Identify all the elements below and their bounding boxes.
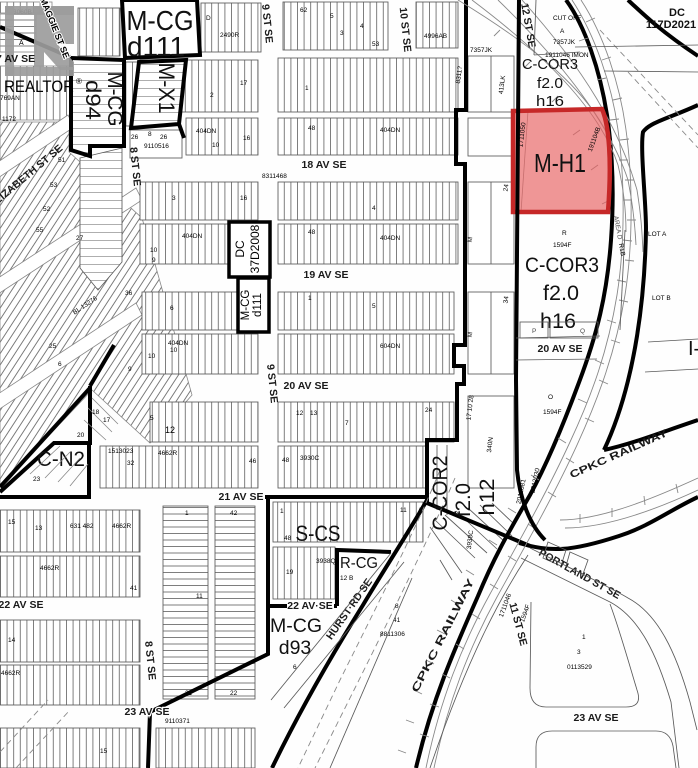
svg-text:d111: d111 bbox=[127, 31, 185, 62]
svg-text:42: 42 bbox=[230, 510, 238, 517]
svg-text:22 AV·SE: 22 AV·SE bbox=[287, 600, 333, 612]
svg-text:19 AV SE: 19 AV SE bbox=[304, 269, 349, 281]
svg-text:M: M bbox=[467, 332, 475, 338]
svg-text:4: 4 bbox=[360, 23, 364, 30]
svg-text:21: 21 bbox=[185, 690, 193, 697]
svg-text:6: 6 bbox=[58, 361, 62, 368]
svg-text:404DN: 404DN bbox=[380, 235, 401, 242]
svg-text:51: 51 bbox=[58, 157, 66, 164]
svg-text:M-X1: M-X1 bbox=[154, 63, 179, 114]
svg-text:2490R: 2490R bbox=[220, 32, 239, 39]
svg-text:20: 20 bbox=[77, 432, 85, 439]
svg-text:h12: h12 bbox=[476, 479, 499, 516]
svg-text:1: 1 bbox=[582, 634, 586, 641]
svg-text:1594F: 1594F bbox=[553, 242, 571, 249]
svg-text:26: 26 bbox=[160, 134, 168, 141]
svg-text:DC: DC bbox=[669, 7, 685, 19]
svg-text:13: 13 bbox=[310, 410, 318, 417]
svg-text:C-COR3: C-COR3 bbox=[525, 254, 599, 277]
svg-text:15: 15 bbox=[100, 748, 108, 755]
svg-text:1172: 1172 bbox=[2, 116, 16, 123]
svg-text:CUT OFF: CUT OFF bbox=[553, 15, 581, 22]
svg-text:Q: Q bbox=[580, 328, 585, 335]
svg-text:11: 11 bbox=[196, 593, 203, 600]
svg-text:18 AV SE: 18 AV SE bbox=[302, 159, 347, 171]
svg-text:I-: I- bbox=[688, 338, 698, 360]
svg-text:404DN: 404DN bbox=[196, 128, 217, 135]
svg-text:12: 12 bbox=[296, 410, 304, 417]
svg-text:O: O bbox=[548, 394, 553, 401]
svg-text:2: 2 bbox=[210, 92, 214, 99]
svg-text:D: D bbox=[206, 15, 211, 22]
svg-text:1594F: 1594F bbox=[543, 409, 561, 416]
svg-text:5: 5 bbox=[372, 303, 376, 310]
svg-text:1: 1 bbox=[308, 295, 312, 302]
svg-text:f2.0: f2.0 bbox=[452, 483, 475, 517]
svg-text:0113529: 0113529 bbox=[567, 664, 592, 671]
svg-text:1: 1 bbox=[280, 508, 284, 515]
svg-text:32: 32 bbox=[127, 460, 135, 467]
svg-text:24: 24 bbox=[425, 407, 433, 414]
svg-text:8: 8 bbox=[148, 131, 152, 138]
svg-text:3938Q: 3938Q bbox=[316, 558, 336, 565]
svg-text:A: A bbox=[19, 40, 24, 47]
svg-text:17: 17 bbox=[240, 80, 248, 87]
svg-text:17: 17 bbox=[103, 417, 111, 424]
svg-text:48: 48 bbox=[308, 229, 316, 236]
svg-text:19: 19 bbox=[286, 569, 294, 576]
svg-text:12 B: 12 B bbox=[340, 575, 353, 582]
svg-text:LOT A: LOT A bbox=[648, 231, 667, 238]
svg-text:M: M bbox=[467, 237, 475, 243]
svg-text:4662R: 4662R bbox=[40, 565, 59, 572]
svg-text:7 AV SE: 7 AV SE bbox=[0, 53, 35, 65]
svg-text:8811306: 8811306 bbox=[380, 631, 405, 638]
svg-text:4662R: 4662R bbox=[158, 450, 177, 457]
svg-text:4996AB: 4996AB bbox=[424, 33, 447, 40]
svg-text:16: 16 bbox=[243, 135, 251, 142]
svg-text:18: 18 bbox=[92, 409, 100, 416]
svg-text:d111: d111 bbox=[252, 293, 264, 317]
svg-text:14: 14 bbox=[8, 637, 16, 644]
svg-text:23 AV SE: 23 AV SE bbox=[125, 706, 170, 718]
svg-text:52: 52 bbox=[43, 206, 51, 213]
svg-text:53: 53 bbox=[50, 182, 58, 189]
svg-text:A: A bbox=[560, 28, 565, 35]
svg-text:4: 4 bbox=[372, 205, 376, 212]
svg-text:48: 48 bbox=[308, 125, 316, 132]
svg-text:9110516: 9110516 bbox=[144, 143, 169, 150]
svg-text:37D2008: 37D2008 bbox=[248, 224, 262, 273]
svg-text:R: R bbox=[562, 230, 567, 237]
svg-text:LOT B: LOT B bbox=[652, 295, 671, 302]
svg-text:24: 24 bbox=[503, 183, 511, 191]
svg-text:3: 3 bbox=[577, 649, 581, 656]
svg-text:16: 16 bbox=[240, 195, 248, 202]
svg-text:R-CG: R-CG bbox=[340, 555, 378, 572]
svg-text:f2.0: f2.0 bbox=[537, 75, 563, 92]
svg-text:25: 25 bbox=[49, 343, 57, 350]
svg-text:®: ® bbox=[76, 77, 82, 86]
svg-text:15: 15 bbox=[8, 519, 16, 526]
svg-text:1: 1 bbox=[305, 85, 309, 92]
svg-text:M-H1: M-H1 bbox=[534, 148, 586, 178]
svg-text:3: 3 bbox=[340, 30, 344, 37]
svg-text:604DN: 604DN bbox=[380, 343, 401, 350]
svg-text:41: 41 bbox=[393, 617, 401, 624]
svg-text:26: 26 bbox=[131, 134, 139, 141]
svg-text:404DN: 404DN bbox=[168, 340, 189, 347]
svg-text:M-CG: M-CG bbox=[240, 290, 252, 321]
svg-text:5: 5 bbox=[150, 415, 154, 422]
svg-text:d94: d94 bbox=[81, 80, 104, 120]
svg-text:48: 48 bbox=[282, 457, 290, 464]
svg-text:23: 23 bbox=[33, 476, 41, 483]
svg-text:9: 9 bbox=[152, 257, 156, 264]
svg-text:36: 36 bbox=[125, 290, 133, 297]
svg-text:20 AV SE: 20 AV SE bbox=[284, 380, 329, 392]
svg-text:404DN: 404DN bbox=[380, 127, 401, 134]
svg-text:11: 11 bbox=[400, 507, 407, 514]
svg-text:3930C: 3930C bbox=[300, 455, 319, 462]
svg-text:769AN: 769AN bbox=[0, 95, 20, 102]
svg-text:62: 62 bbox=[300, 7, 308, 14]
svg-text:10: 10 bbox=[148, 353, 156, 360]
svg-text:S-CS: S-CS bbox=[296, 521, 341, 546]
svg-text:7357JK: 7357JK bbox=[470, 47, 493, 54]
svg-text:10: 10 bbox=[170, 347, 178, 354]
svg-text:3: 3 bbox=[172, 195, 176, 202]
svg-text:117D2021: 117D2021 bbox=[646, 19, 696, 31]
svg-text:48: 48 bbox=[284, 535, 292, 542]
svg-text:22 AV SE: 22 AV SE bbox=[0, 599, 43, 611]
svg-text:22: 22 bbox=[230, 690, 238, 697]
svg-text:h16: h16 bbox=[540, 310, 576, 333]
svg-text:1: 1 bbox=[185, 510, 189, 517]
svg-text:DC: DC bbox=[233, 240, 247, 258]
svg-text:7: 7 bbox=[345, 420, 349, 427]
svg-text:55: 55 bbox=[36, 227, 44, 234]
svg-text:41: 41 bbox=[130, 585, 138, 592]
svg-text:P: P bbox=[532, 328, 536, 335]
svg-text:46: 46 bbox=[249, 458, 257, 465]
svg-text:C-N2: C-N2 bbox=[37, 448, 85, 471]
svg-text:12: 12 bbox=[165, 425, 175, 435]
svg-text:9: 9 bbox=[128, 366, 132, 373]
svg-text:A: A bbox=[418, 507, 423, 514]
svg-text:7357JK: 7357JK bbox=[553, 39, 576, 46]
svg-text:631 482: 631 482 bbox=[70, 523, 94, 530]
svg-text:5: 5 bbox=[330, 13, 334, 20]
svg-text:f2.0: f2.0 bbox=[543, 282, 579, 305]
svg-text:34: 34 bbox=[503, 295, 511, 303]
svg-text:404DN: 404DN bbox=[182, 233, 203, 240]
svg-text:10: 10 bbox=[212, 142, 220, 149]
svg-text:6: 6 bbox=[170, 305, 174, 312]
svg-text:4662R: 4662R bbox=[112, 523, 131, 530]
svg-text:27: 27 bbox=[76, 235, 84, 242]
svg-text:13: 13 bbox=[35, 525, 43, 532]
svg-text:20 AV SE: 20 AV SE bbox=[538, 343, 583, 355]
svg-text:REALTOR: REALTOR bbox=[4, 77, 74, 96]
svg-text:53: 53 bbox=[372, 41, 380, 48]
svg-text:9110371: 9110371 bbox=[165, 718, 190, 725]
svg-text:1513023: 1513023 bbox=[108, 448, 134, 455]
svg-text:d93: d93 bbox=[279, 637, 312, 659]
svg-text:21 AV SE: 21 AV SE bbox=[219, 491, 264, 503]
svg-text:M-CG: M-CG bbox=[270, 615, 322, 637]
svg-text:h16: h16 bbox=[536, 93, 564, 110]
svg-text:4662R: 4662R bbox=[1, 670, 20, 677]
svg-text:C-COR2: C-COR2 bbox=[429, 456, 452, 531]
svg-text:8311468: 8311468 bbox=[262, 173, 287, 180]
svg-text:23 AV SE: 23 AV SE bbox=[574, 712, 619, 724]
svg-text:M-CG: M-CG bbox=[103, 72, 126, 127]
svg-text:10: 10 bbox=[150, 247, 158, 254]
